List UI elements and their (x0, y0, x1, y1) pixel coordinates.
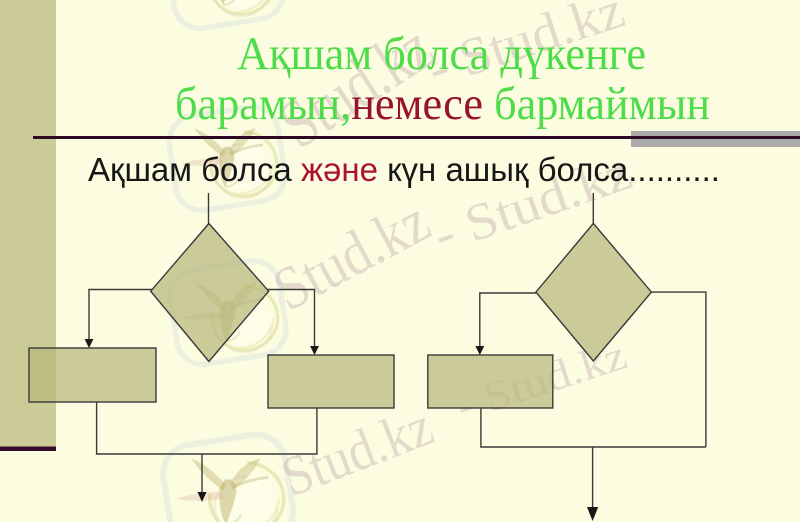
svg-text:барамын,немесе бармаймын: барамын,немесе бармаймын (175, 78, 710, 130)
svg-text:Ақшам болса және күн ашық болс: Ақшам болса және күн ашық болса.........… (88, 151, 720, 188)
svg-text:Ақшам болса дүкенге: Ақшам болса дүкенге (237, 28, 646, 80)
